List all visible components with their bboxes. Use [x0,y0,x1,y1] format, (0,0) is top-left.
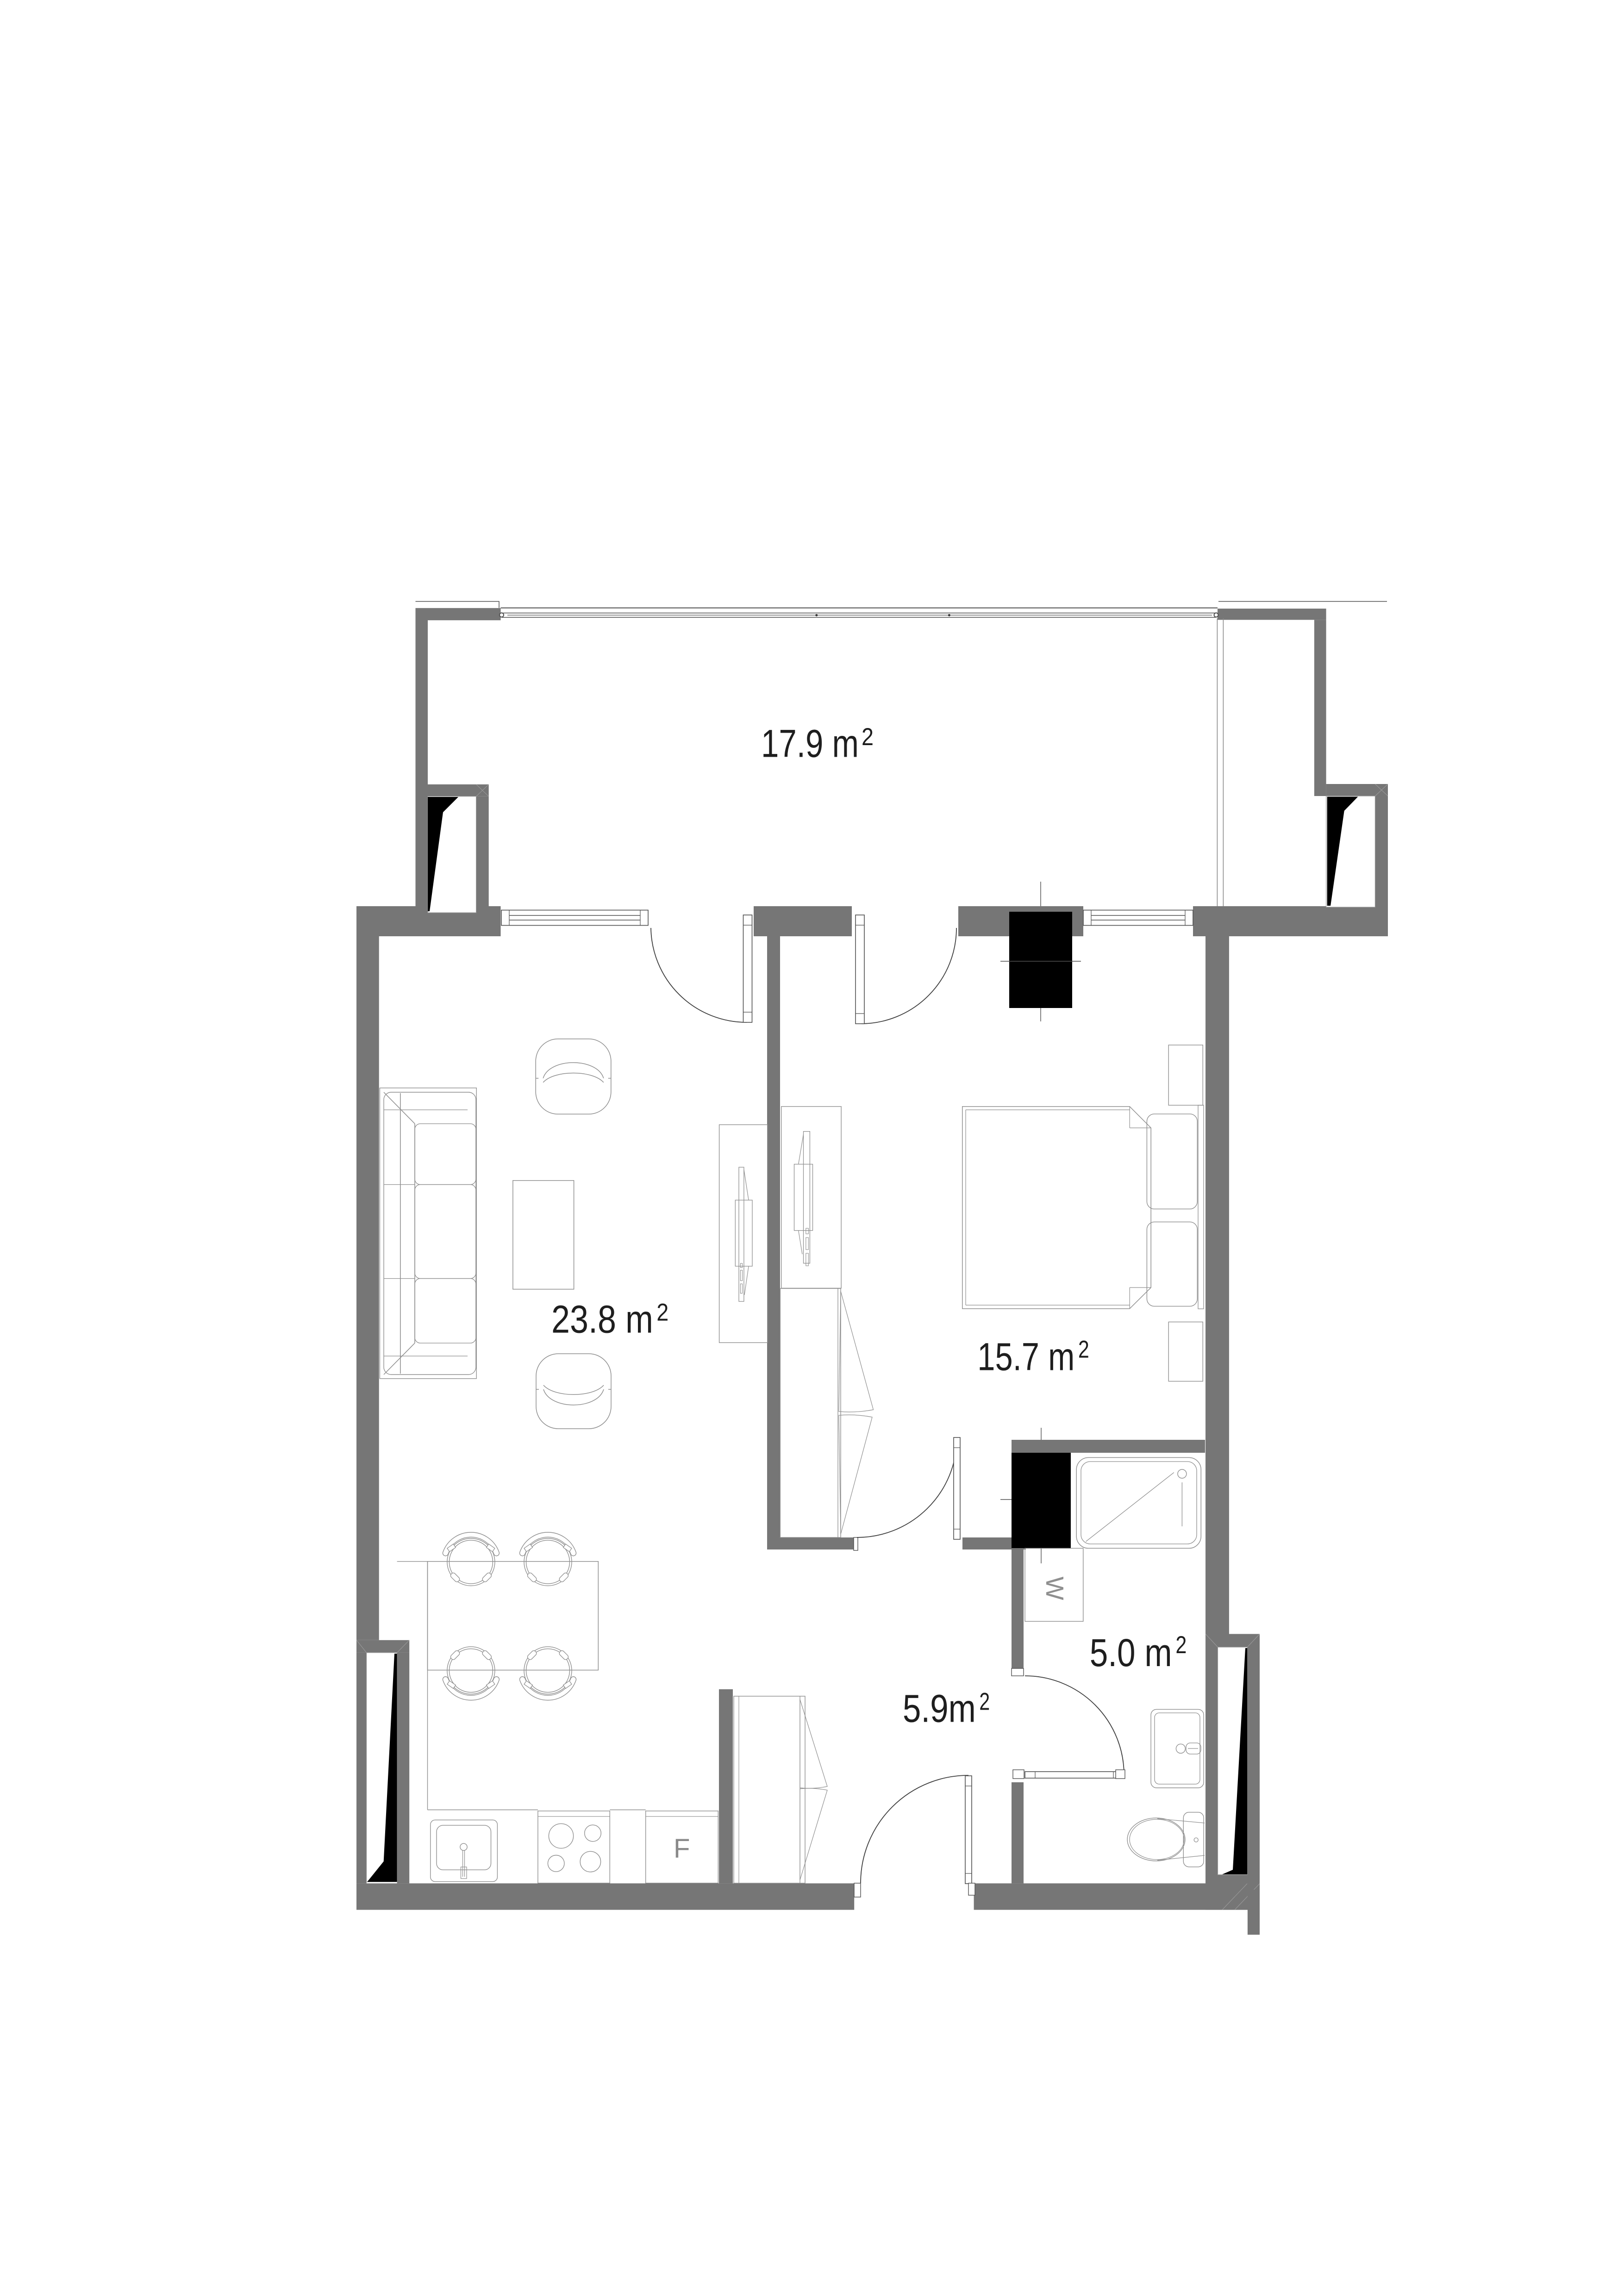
svg-text:23.8 m: 23.8 m [551,1297,653,1341]
svg-text:5.0 m: 5.0 m [1090,1631,1172,1674]
svg-text:2: 2 [1078,1336,1089,1363]
svg-text:2: 2 [656,1299,668,1326]
svg-text:2: 2 [862,723,874,751]
svg-text:5.9m: 5.9m [903,1687,976,1730]
svg-text:W: W [1041,1577,1068,1600]
svg-text:2: 2 [979,1688,990,1716]
svg-text:17.9 m: 17.9 m [761,722,859,765]
svg-text:2: 2 [1175,1631,1187,1659]
svg-text:F: F [674,1834,690,1864]
svg-text:15.7 m: 15.7 m [977,1335,1074,1379]
